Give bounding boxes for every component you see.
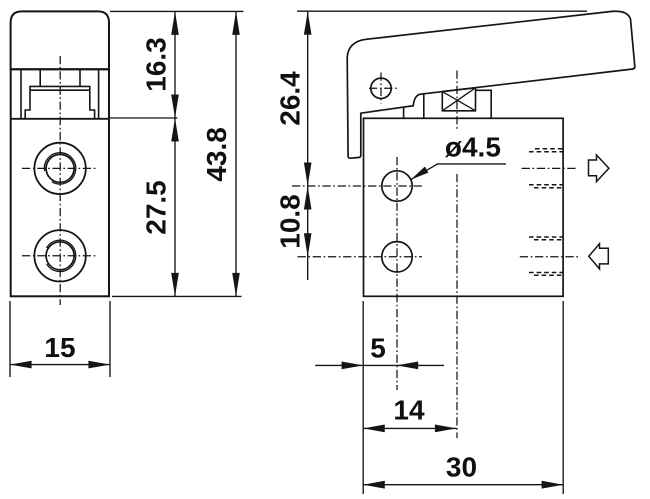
svg-text:43.8: 43.8: [201, 127, 232, 182]
svg-text:14: 14: [393, 395, 425, 426]
svg-text:ø4.5: ø4.5: [445, 132, 501, 163]
svg-text:27.5: 27.5: [140, 180, 171, 235]
svg-text:26.4: 26.4: [275, 71, 306, 126]
svg-text:10.8: 10.8: [275, 194, 306, 249]
svg-text:30: 30: [446, 452, 477, 483]
svg-text:15: 15: [44, 332, 75, 363]
svg-text:16.3: 16.3: [140, 37, 171, 92]
svg-text:5: 5: [370, 333, 386, 364]
